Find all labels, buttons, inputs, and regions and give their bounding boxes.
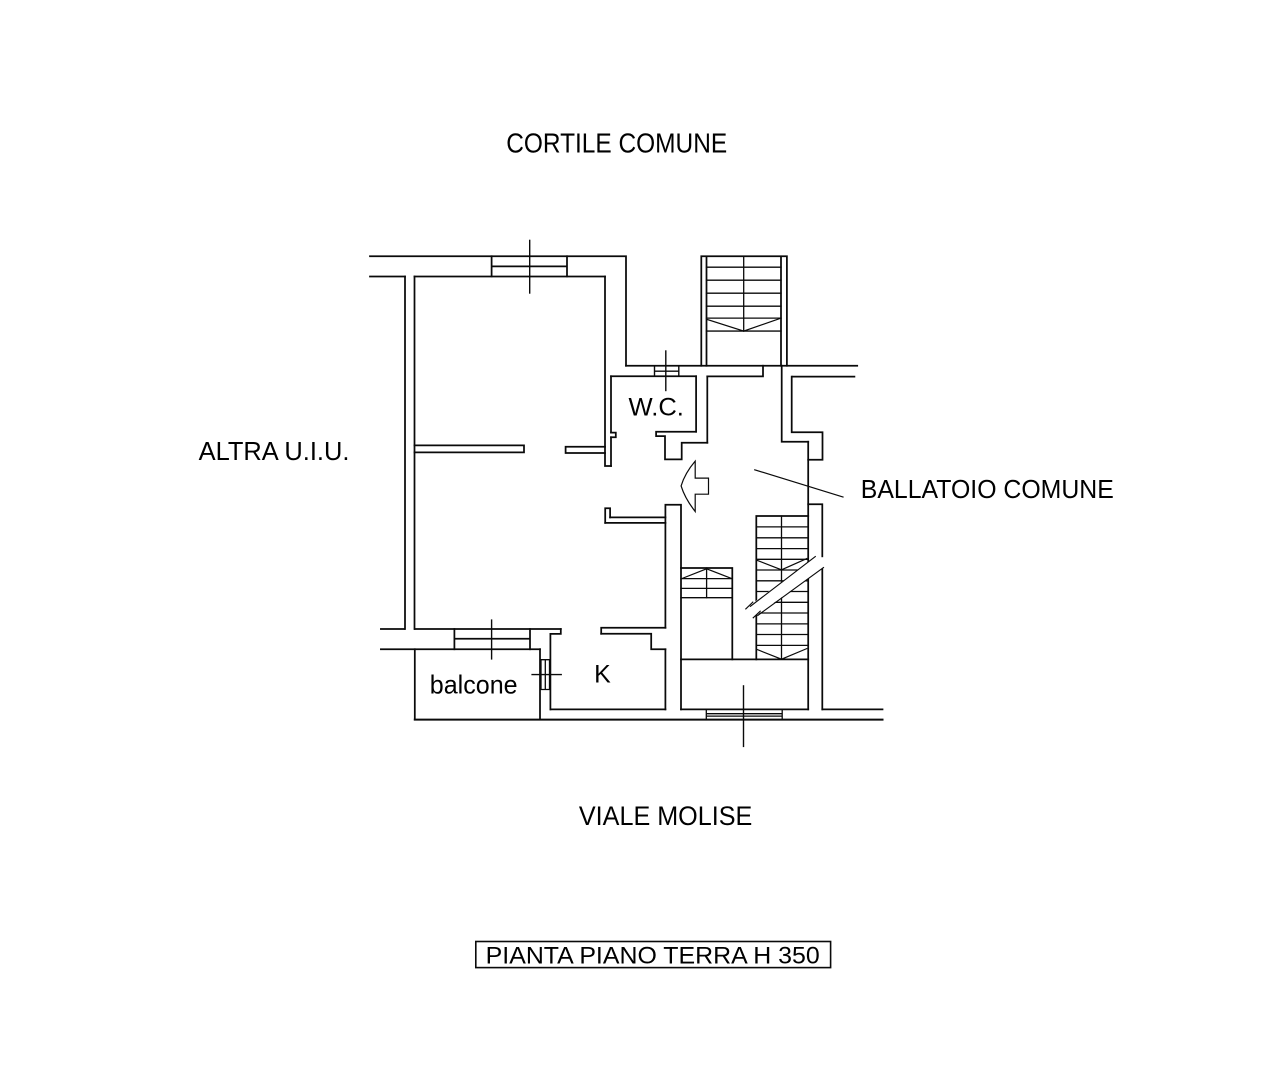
svg-text:PIANTA PIANO TERRA H 350: PIANTA PIANO TERRA H 350 bbox=[486, 944, 820, 970]
svg-text:CORTILE COMUNE: CORTILE COMUNE bbox=[506, 128, 727, 159]
svg-text:VIALE MOLISE: VIALE MOLISE bbox=[579, 801, 752, 831]
svg-text:balcone: balcone bbox=[430, 670, 518, 700]
svg-text:ALTRA U.I.U.: ALTRA U.I.U. bbox=[199, 436, 350, 466]
svg-text:BALLATOIO COMUNE: BALLATOIO COMUNE bbox=[861, 476, 1114, 504]
svg-text:K: K bbox=[594, 661, 611, 689]
svg-text:W.C.: W.C. bbox=[629, 394, 684, 422]
